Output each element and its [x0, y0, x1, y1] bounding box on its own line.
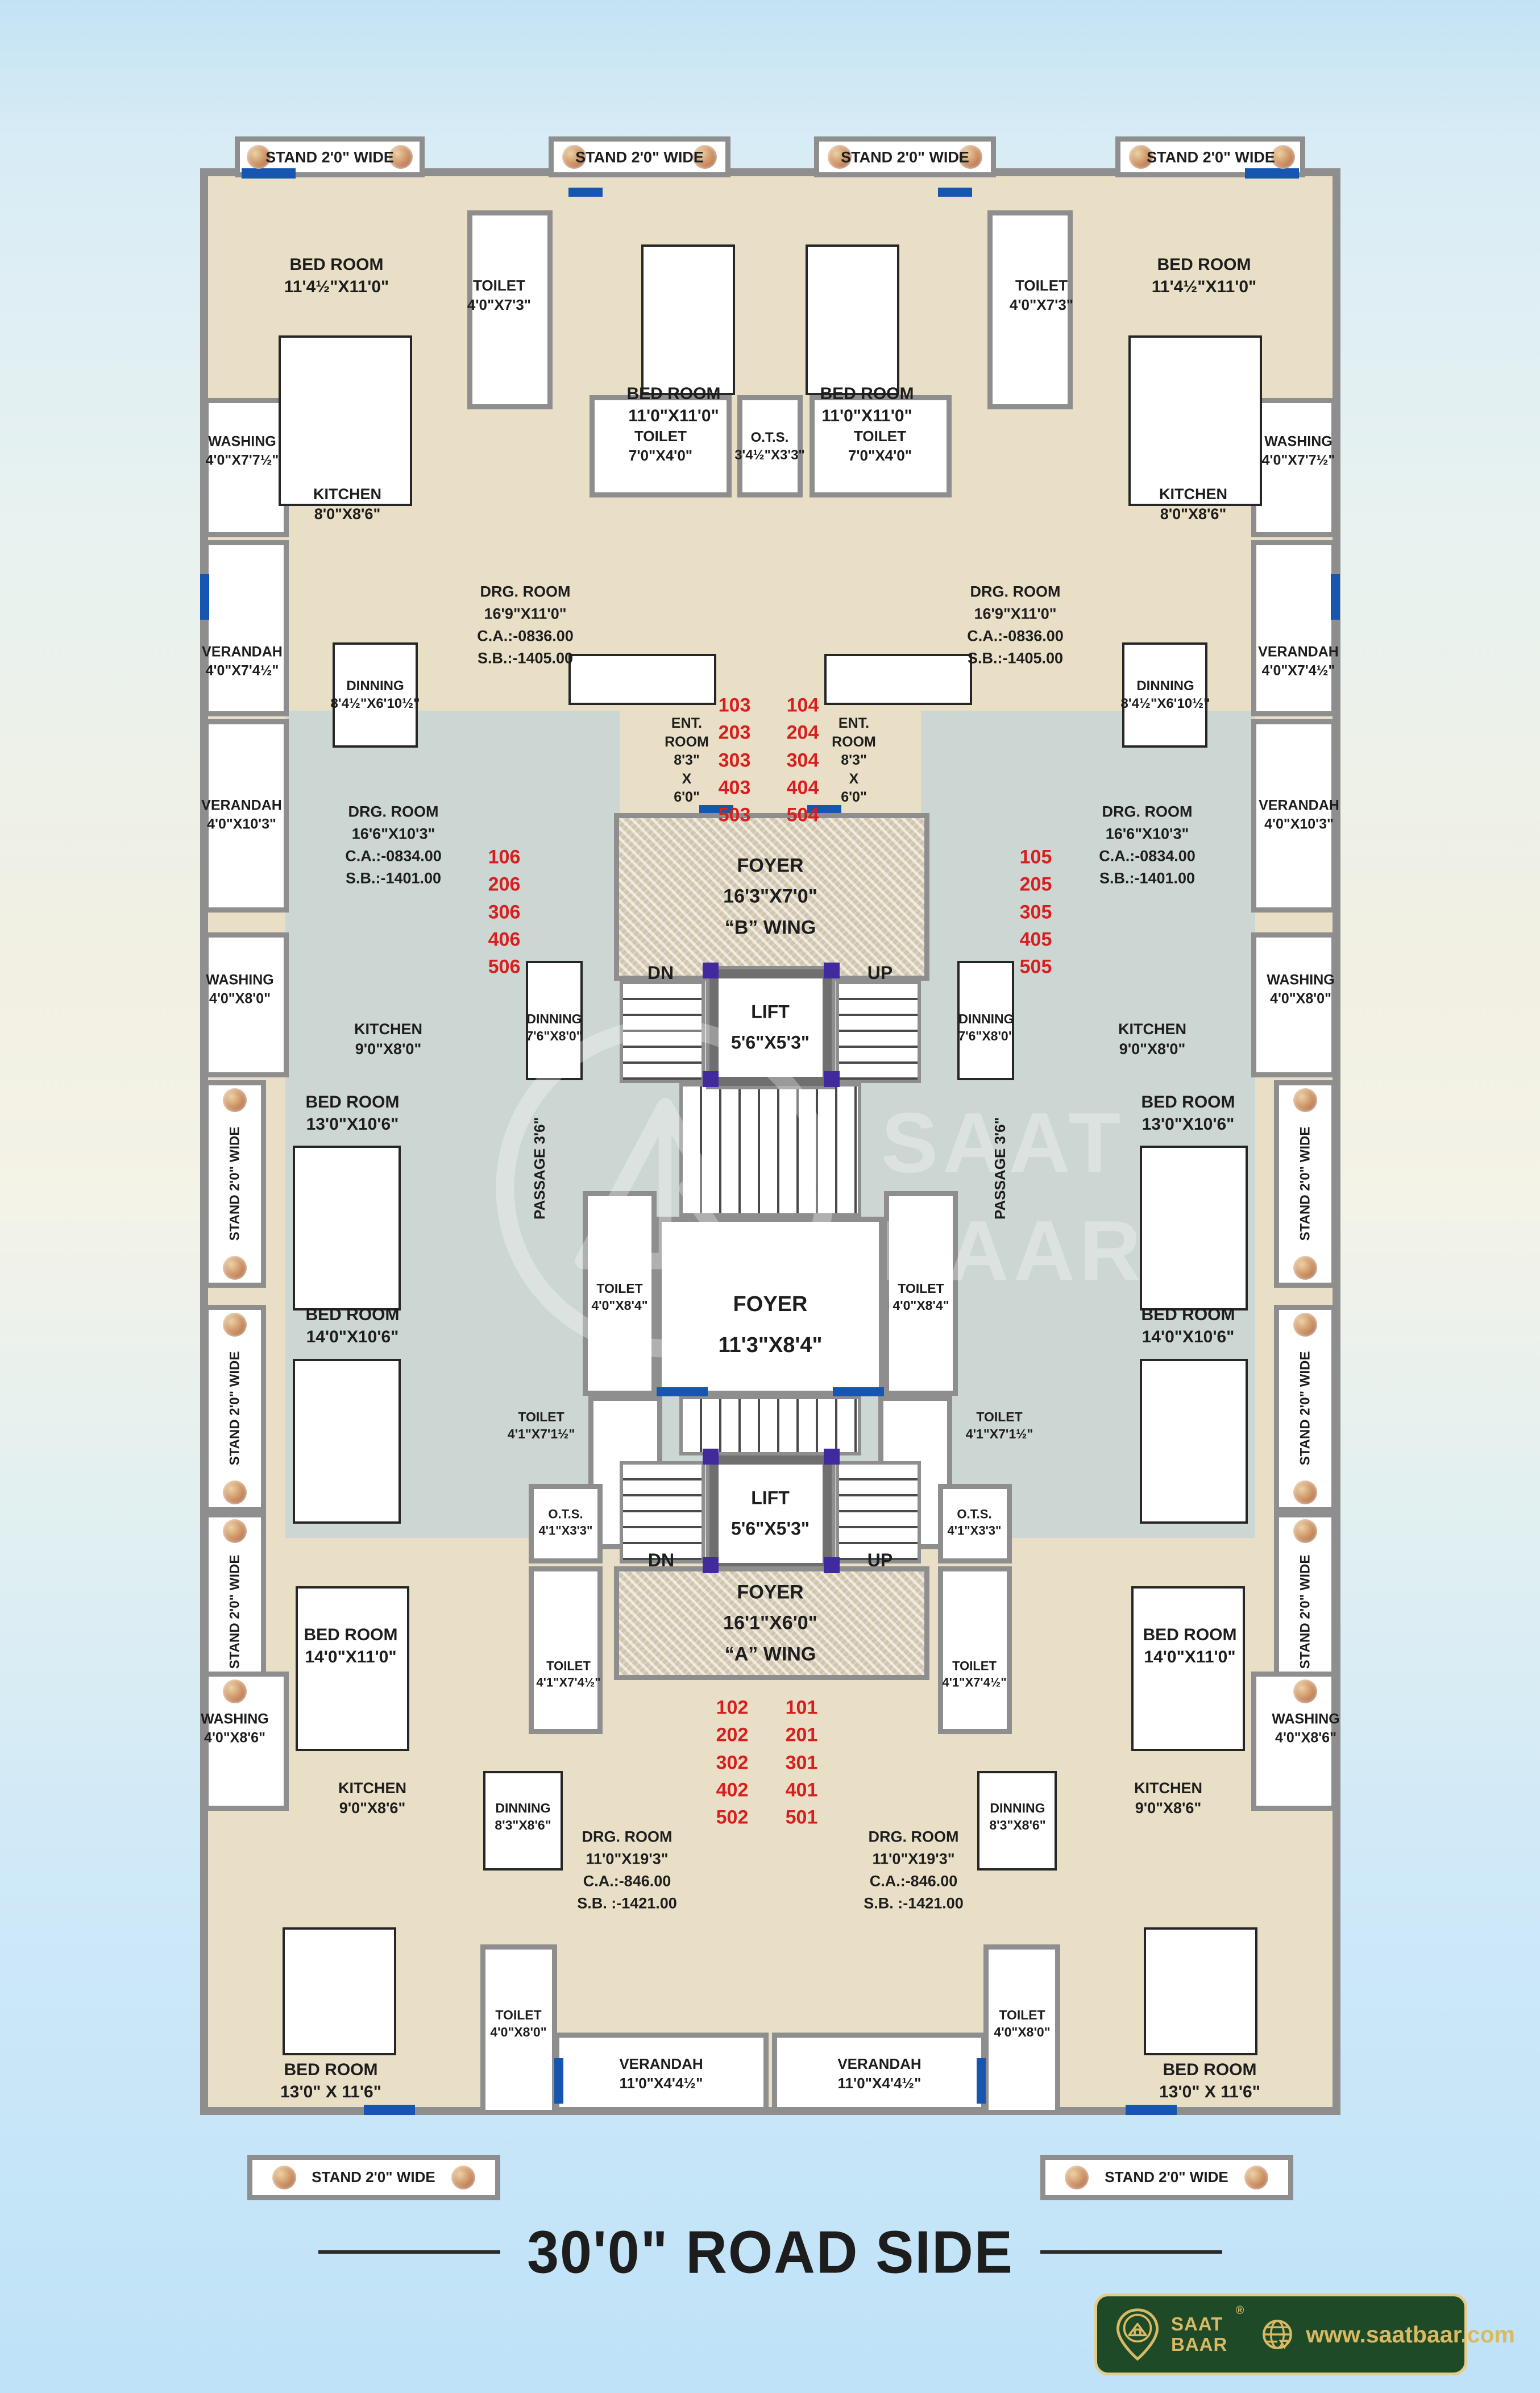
bed-awing-right — [1131, 1586, 1245, 1751]
toilet-bottom-right-label: TOILET4'0"X8'0" — [994, 2007, 1050, 2041]
kitchen-awing-right-label: KITCHEN9'0"X8'6" — [1134, 1778, 1202, 1818]
blue-accent — [1245, 168, 1299, 179]
ots-a-left-label: O.T.S.4'1"X3'3" — [539, 1506, 593, 1538]
ots-a-right-label: O.T.S.4'1"X3'3" — [948, 1506, 1002, 1538]
bedroom-top-right: BED ROOM11'4½"X11'0" — [1152, 254, 1257, 298]
bed-center-right — [806, 244, 899, 395]
toilet-74-left — [529, 1566, 603, 1734]
bed-14-left — [293, 1359, 401, 1524]
units-105: 105205305405505 — [1020, 843, 1052, 980]
bed-14-right — [1140, 1359, 1248, 1524]
units-104: 104204304404504 — [787, 691, 819, 828]
plan-canvas: SAAT BAAR ® 30'0" ROAD SIDE SAAT BAAR ® … — [0, 0, 1540, 2393]
passage-left-label: PASSAGE 3'6" — [530, 1117, 550, 1220]
purple-accent — [824, 963, 840, 978]
verandah-top-left-label: VERANDAH4'0"X7'4½" — [202, 643, 283, 680]
purple-accent — [824, 1557, 840, 1573]
flower-pot-icon — [223, 1313, 247, 1337]
blue-accent — [1331, 574, 1340, 620]
bedroom-bottom-right-label: BED ROOM13'0" X 11'6" — [1159, 2059, 1260, 2103]
dinning-bwing-right-label: DINNING7'6"X8'0" — [958, 1011, 1014, 1045]
footer-brand-bar: SAAT BAAR ® www.saatbaar.com — [1094, 2294, 1467, 2375]
foyer-b-label: FOYER16'3"X7'0"“B” WING — [723, 850, 817, 943]
drg-room-bwing-right: DRG. ROOM16'6"X10'3"C.A.:-0834.00S.B.:-1… — [1099, 801, 1196, 890]
dinning-awing-right-label: DINNING8'3"X8'6" — [989, 1800, 1045, 1834]
ent-room-right: ENT.ROOM8'3"X6'0" — [832, 714, 876, 807]
toilet-bottom-left-label: TOILET4'0"X8'0" — [490, 2007, 546, 2041]
stairs-run-b — [679, 1083, 861, 1217]
blue-accent — [977, 2058, 986, 2104]
drg-room-awing-left: DRG. ROOM11'0"X19'3"C.A.:-846.00S.B. :-1… — [577, 1826, 677, 1915]
bed-top-right — [1128, 335, 1262, 506]
line-accent — [1040, 2250, 1222, 2254]
blue-accent — [938, 188, 972, 197]
toilet-74-right — [938, 1566, 1012, 1734]
verandah-row4-left-label: VERANDAH4'0"X10'3" — [201, 797, 282, 833]
bed-13-right — [1140, 1146, 1248, 1310]
passage-right-label: PASSAGE 3'6" — [991, 1117, 1010, 1220]
stairs-a-left — [620, 1461, 705, 1563]
stairs-run-a — [679, 1396, 861, 1455]
purple-accent — [703, 1071, 719, 1087]
stand-bottom-left-label: STAND 2'0" WIDE — [312, 2168, 435, 2187]
verandah-row4-right-label: VERANDAH4'0"X10'3" — [1259, 797, 1339, 833]
road-side-title: 30'0" ROAD SIDE — [527, 2218, 1014, 2287]
footer-registered-mark: ® — [1236, 2305, 1245, 2317]
bedroom-center-left: BED ROOM11'0"X11'0" — [627, 383, 721, 427]
washing-awing-left-label: WASHING4'0"X8'6" — [201, 1710, 268, 1747]
flower-pot-icon — [272, 2166, 296, 2189]
location-pin-icon — [1116, 2308, 1159, 2361]
flower-pot-icon — [1293, 1480, 1317, 1504]
stand-top-2: STAND 2'0" WIDE — [575, 147, 704, 167]
flower-pot-icon — [223, 1256, 247, 1280]
stand-top-4: STAND 2'0" WIDE — [1147, 147, 1275, 167]
foyer-a-label: FOYER16'1"X6'0"“A” WING — [723, 1577, 817, 1669]
blue-accent — [242, 168, 296, 179]
ots-top-label: O.T.S.3'4½"X3'3" — [734, 429, 805, 464]
flower-pot-icon — [223, 1519, 247, 1543]
drg-room-awing-right: DRG. ROOM11'0"X19'3"C.A.:-846.00S.B. :-1… — [864, 1826, 964, 1915]
lift-b-label: LIFT5'6"X5'3" — [731, 997, 810, 1059]
blue-accent — [364, 2105, 415, 2115]
stairs-b-right — [836, 981, 921, 1083]
units-103: 103203303403503 — [719, 691, 751, 828]
ent-room-left: ENT.ROOM8'3"X6'0" — [665, 714, 709, 807]
flower-pot-icon — [1293, 1256, 1317, 1280]
kitchen-top-right-label: KITCHEN8'0"X8'6" — [1159, 484, 1227, 524]
blue-accent — [1126, 2105, 1177, 2115]
kitchen-bwing-right-label: KITCHEN9'0"X8'0" — [1118, 1019, 1186, 1059]
toilet-74-left-label: TOILET4'1"X7'4½" — [536, 1658, 600, 1690]
lift-a-label: LIFT5'6"X5'3" — [731, 1483, 810, 1545]
bed-bottom-right — [1144, 1927, 1257, 2055]
flower-pot-icon — [223, 1480, 247, 1504]
washing-bwing-left-label: WASHING4'0"X8'0" — [206, 971, 273, 1008]
bed-13-left — [293, 1146, 401, 1310]
bed-top-left — [279, 335, 412, 506]
kitchen-awing-left-label: KITCHEN9'0"X8'6" — [338, 1778, 406, 1818]
footer-brand-text: SAAT BAAR ® — [1171, 2314, 1227, 2354]
stand-v1-left-label: STAND 2'0" WIDE — [226, 1127, 243, 1241]
blue-accent — [554, 2058, 563, 2104]
dinning-top-right: DINNING8'4½"X6'10½" — [1121, 677, 1210, 712]
toilet-71-left-label: TOILET4'1"X7'1½" — [508, 1409, 575, 1443]
bedroom-top-left: BED ROOM11'4½"X11'0" — [284, 254, 389, 298]
footer-brand-line1: SAAT — [1171, 2314, 1227, 2334]
stand-v2-left-label: STAND 2'0" WIDE — [226, 1351, 243, 1466]
central-foyer-label: FOYER11'3"X8'4" — [718, 1284, 822, 1366]
bedroom-13-left-label: BED ROOM13'0"X10'6" — [306, 1091, 400, 1135]
stairs-a-right — [836, 1461, 921, 1563]
blue-accent — [657, 1387, 708, 1396]
verandah-bottom-left-label: VERANDAH11'0"X4'4½" — [619, 2055, 703, 2093]
flower-pot-icon — [223, 1679, 247, 1703]
stand-v2-right-label: STAND 2'0" WIDE — [1296, 1351, 1314, 1466]
line-accent — [318, 2250, 500, 2254]
footer-website-link[interactable]: www.saatbaar.com — [1306, 2321, 1515, 2348]
flower-pot-icon — [1293, 1088, 1317, 1112]
purple-accent — [824, 1071, 840, 1087]
dn-b-label: DN — [647, 961, 674, 985]
flower-pot-icon — [1293, 1519, 1317, 1543]
dinning-awing-left-label: DINNING8'3"X8'6" — [495, 1800, 551, 1834]
footer-brand-line2: BAAR — [1171, 2334, 1227, 2355]
purple-accent — [824, 1449, 840, 1465]
flower-pot-icon — [1293, 1679, 1317, 1703]
bedroom-13-right-label: BED ROOM13'0"X10'6" — [1141, 1091, 1235, 1135]
stand-v3-right-label: STAND 2'0" WIDE — [1296, 1555, 1314, 1669]
bedroom-center-right: BED ROOM11'0"X11'0" — [820, 383, 914, 427]
verandah-bottom-right-label: VERANDAH11'0"X4'4½" — [837, 2055, 921, 2093]
toilet-row1-left-label: TOILET4'0"X7'3" — [467, 276, 531, 315]
up-b-label: UP — [867, 961, 893, 985]
washing-top-right-label: WASHING4'0"X7'7½" — [1262, 433, 1335, 470]
bed-awing-left — [296, 1586, 409, 1751]
bedroom-14-left-label: BED ROOM14'0"X10'6" — [306, 1304, 400, 1348]
bed-bottom-left — [283, 1927, 396, 2055]
flower-pot-icon — [1065, 2166, 1089, 2189]
drg-room-top-left: DRG. ROOM16'9"X11'0"C.A.:-0836.00S.B.:-1… — [477, 581, 574, 670]
purple-accent — [703, 1557, 719, 1573]
stand-bottom-right-label: STAND 2'0" WIDE — [1105, 2168, 1228, 2187]
globe-icon — [1261, 2319, 1293, 2350]
blue-accent — [200, 574, 209, 620]
purple-accent — [703, 1449, 719, 1465]
toilet-70x40-left-label: TOILET7'0"X4'0" — [629, 427, 692, 466]
bedroom-awing-left-label: BED ROOM14'0"X11'0" — [304, 1624, 398, 1668]
blue-accent — [568, 188, 603, 197]
drg-room-bwing-left: DRG. ROOM16'6"X10'3"C.A.:-0834.00S.B.:-1… — [345, 801, 442, 890]
stand-v1-right-label: STAND 2'0" WIDE — [1296, 1127, 1314, 1241]
verandah-top-left — [204, 540, 289, 716]
toilet-71-right-label: TOILET4'1"X7'1½" — [966, 1409, 1033, 1443]
washing-awing-right-label: WASHING4'0"X8'6" — [1272, 1710, 1339, 1747]
toilet-70x40-right-label: TOILET7'0"X4'0" — [848, 427, 912, 466]
stand-v3-left-label: STAND 2'0" WIDE — [226, 1555, 243, 1669]
sofa-drg-right — [824, 654, 972, 705]
flower-pot-icon — [451, 2166, 475, 2189]
up-a-label: UP — [867, 1549, 893, 1573]
washing-top-left-label: WASHING4'0"X7'7½" — [206, 433, 279, 470]
dn-a-label: DN — [648, 1549, 674, 1573]
bed-center-left — [641, 244, 735, 395]
sofa-drg-left — [568, 654, 716, 705]
units-102: 102202302402502 — [716, 1694, 749, 1831]
flower-pot-icon — [1244, 2166, 1268, 2189]
verandah-top-right-label: VERANDAH4'0"X7'4½" — [1258, 643, 1339, 680]
toilet-74-right-label: TOILET4'1"X7'4½" — [942, 1658, 1006, 1690]
blue-accent — [833, 1387, 884, 1396]
toilet-84-right-label: TOILET4'0"X8'4" — [893, 1280, 949, 1314]
washing-bwing-right-label: WASHING4'0"X8'0" — [1267, 971, 1334, 1008]
verandah-top-right — [1251, 540, 1336, 716]
purple-accent — [703, 963, 719, 978]
stand-top-3: STAND 2'0" WIDE — [841, 147, 969, 167]
kitchen-top-left-label: KITCHEN8'0"X8'6" — [313, 484, 381, 524]
units-106: 106206306406506 — [488, 843, 521, 980]
bedroom-bottom-left-label: BED ROOM13'0" X 11'6" — [280, 2059, 381, 2103]
flower-pot-icon — [1293, 1313, 1317, 1337]
bedroom-awing-right-label: BED ROOM14'0"X11'0" — [1143, 1624, 1237, 1668]
toilet-row1-right-label: TOILET4'0"X7'3" — [1010, 276, 1073, 315]
flower-pot-icon — [223, 1088, 247, 1112]
dinning-bwing-left-label: DINNING7'6"X8'0" — [526, 1011, 582, 1045]
dinning-top-left: DINNING8'4½"X6'10½" — [331, 677, 420, 712]
stand-top-1: STAND 2'0" WIDE — [265, 147, 394, 167]
stairs-b-left — [620, 981, 705, 1083]
drg-room-top-right: DRG. ROOM16'9"X11'0"C.A.:-0836.00S.B.:-1… — [967, 581, 1064, 670]
units-101: 101201301401501 — [786, 1694, 818, 1831]
toilet-84-left-label: TOILET4'0"X8'4" — [591, 1280, 647, 1314]
bedroom-14-right-label: BED ROOM14'0"X10'6" — [1141, 1304, 1235, 1348]
kitchen-bwing-left-label: KITCHEN9'0"X8'0" — [354, 1019, 422, 1059]
